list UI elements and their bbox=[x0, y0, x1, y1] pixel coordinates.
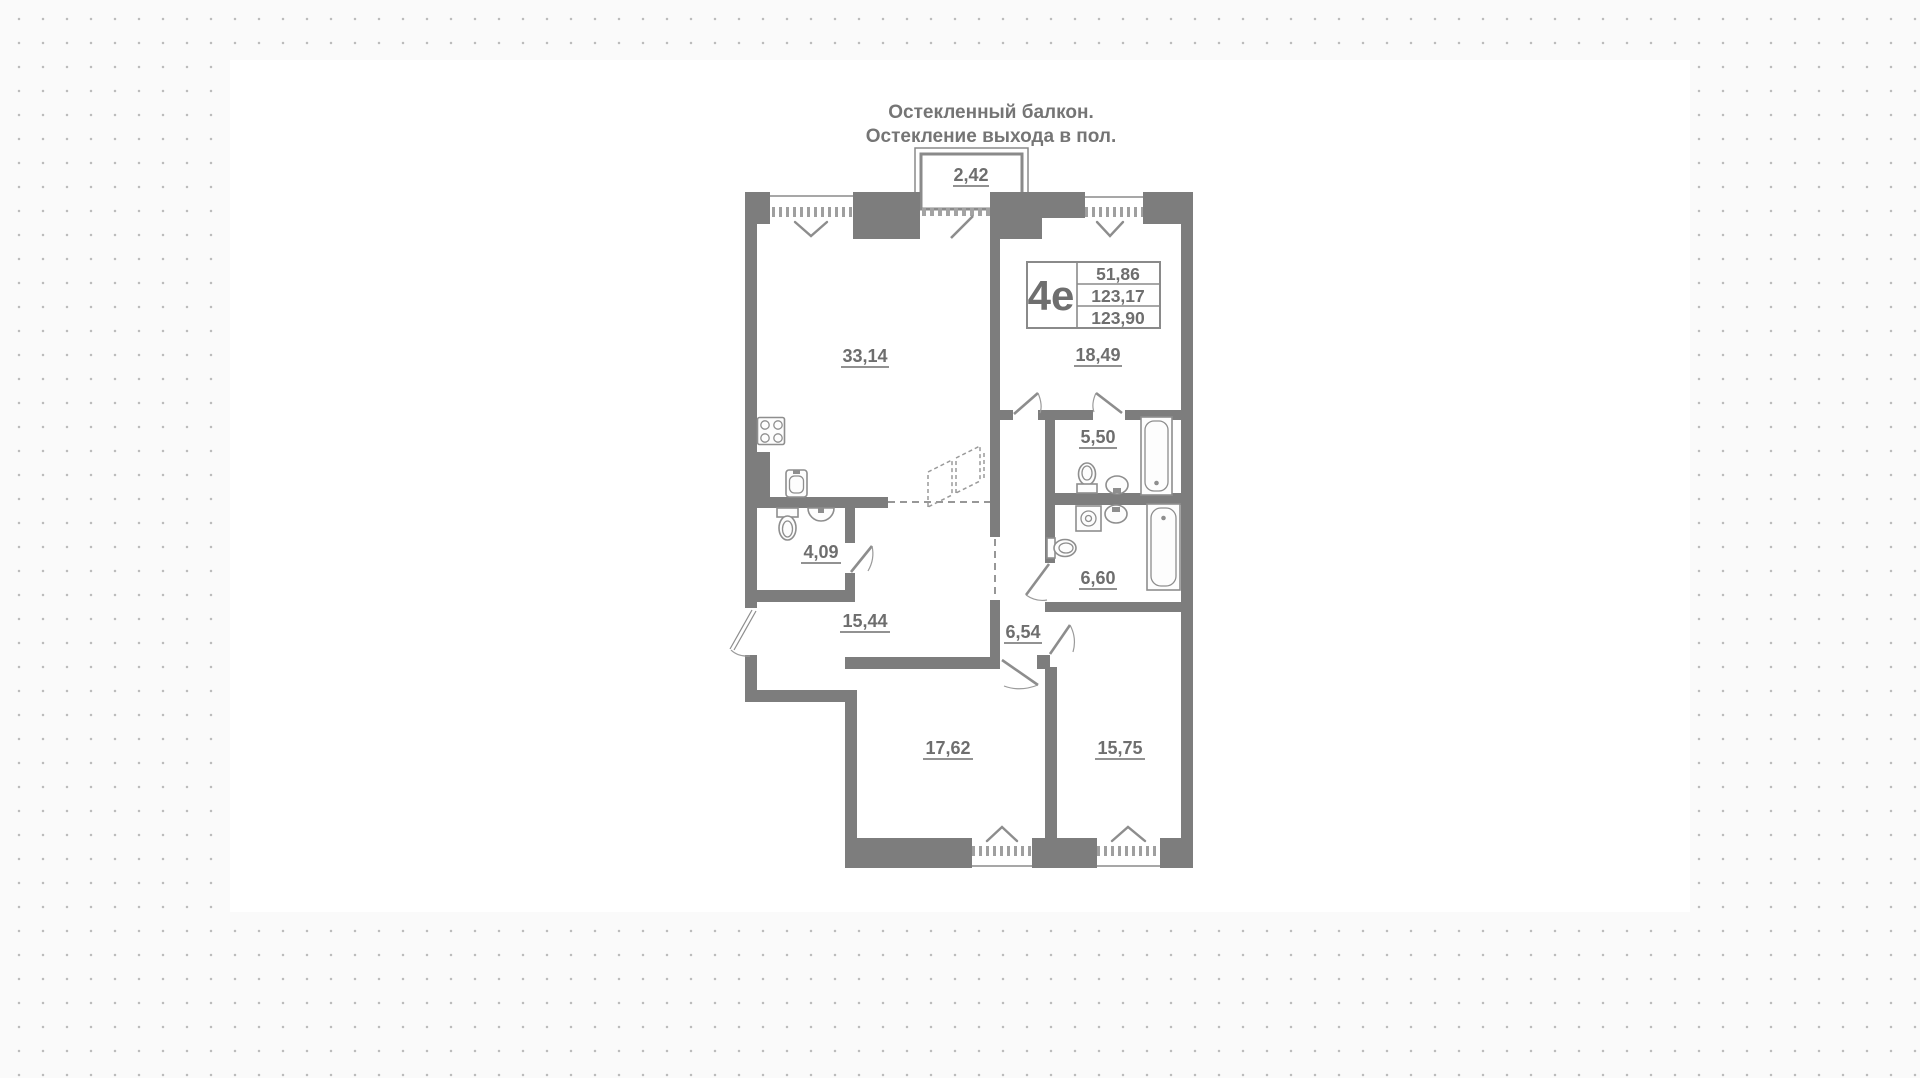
window-symbol-room-15 bbox=[1097, 851, 1160, 866]
floor-plan: Остекленный балкон. Остекление выхода в … bbox=[700, 80, 1220, 890]
kitchen-sink-icon bbox=[786, 470, 807, 497]
toilet-icon bbox=[1047, 538, 1076, 558]
bathtub-icon bbox=[1147, 504, 1180, 590]
bath-top-door-swing-icon bbox=[1093, 393, 1122, 413]
bedroom-door-swing-icon bbox=[1014, 393, 1041, 414]
window-symbol-living bbox=[770, 196, 853, 212]
room-label-bath-bottom: 6,60 bbox=[1080, 568, 1115, 588]
window-symbol-room-17 bbox=[972, 851, 1032, 866]
window-symbol-bedroom bbox=[1085, 197, 1143, 212]
washbasin-icon bbox=[1105, 505, 1127, 523]
window-chevron-icon bbox=[1097, 222, 1123, 236]
info-row-total-area: 123,90 bbox=[1091, 308, 1145, 328]
wc-door-swing-icon bbox=[851, 546, 873, 572]
plan-title-line1: Остекленный балкон. bbox=[888, 102, 1093, 123]
room-area-labels: 2,42 33,14 18,49 5,50 4,09 6,60 15,44 6,… bbox=[801, 165, 1145, 759]
toilet-icon bbox=[1077, 463, 1097, 493]
balcony-door-swing-icon bbox=[951, 216, 973, 238]
washing-machine-icon bbox=[1076, 506, 1101, 531]
room-label-living: 33,14 bbox=[842, 346, 887, 366]
plan-title-line2: Остекление выхода в пол. bbox=[866, 126, 1117, 147]
apartment-info-table: 4е 51,86 123,17 123,90 bbox=[1027, 262, 1160, 328]
bath-bottom-door-swing-icon bbox=[1026, 564, 1049, 600]
bathtub-icon bbox=[1141, 417, 1172, 495]
window-chevron-icon bbox=[795, 222, 827, 236]
room-label-corridor: 6,54 bbox=[1005, 622, 1040, 642]
room-label-room17: 17,62 bbox=[925, 738, 970, 758]
wardrobe-icon bbox=[928, 446, 984, 507]
info-row-area: 123,17 bbox=[1091, 286, 1145, 306]
window-chevron-icon bbox=[987, 827, 1017, 841]
toilet-icon bbox=[777, 508, 798, 540]
room-label-room15: 15,75 bbox=[1097, 738, 1142, 758]
washbasin-icon bbox=[1106, 476, 1128, 494]
room-label-wc: 4,09 bbox=[803, 542, 838, 562]
dotted-background: Остекленный балкон. Остекление выхода в … bbox=[0, 0, 1920, 1078]
room-label-balcony: 2,42 bbox=[953, 165, 988, 185]
entrance-door-swing-icon bbox=[730, 610, 756, 656]
stove-icon bbox=[758, 418, 785, 445]
room-label-bedroom: 18,49 bbox=[1075, 345, 1120, 365]
washbasin-icon bbox=[808, 508, 834, 521]
window-chevron-icon bbox=[1112, 827, 1145, 841]
room-label-hall: 15,44 bbox=[842, 611, 887, 631]
room17-door-swing-icon bbox=[1002, 660, 1038, 689]
room-label-bath-top: 5,50 bbox=[1080, 427, 1115, 447]
info-row-living-area: 51,86 bbox=[1096, 264, 1140, 284]
apartment-type: 4е bbox=[1028, 272, 1075, 319]
room15-door-swing-icon bbox=[1050, 625, 1074, 654]
